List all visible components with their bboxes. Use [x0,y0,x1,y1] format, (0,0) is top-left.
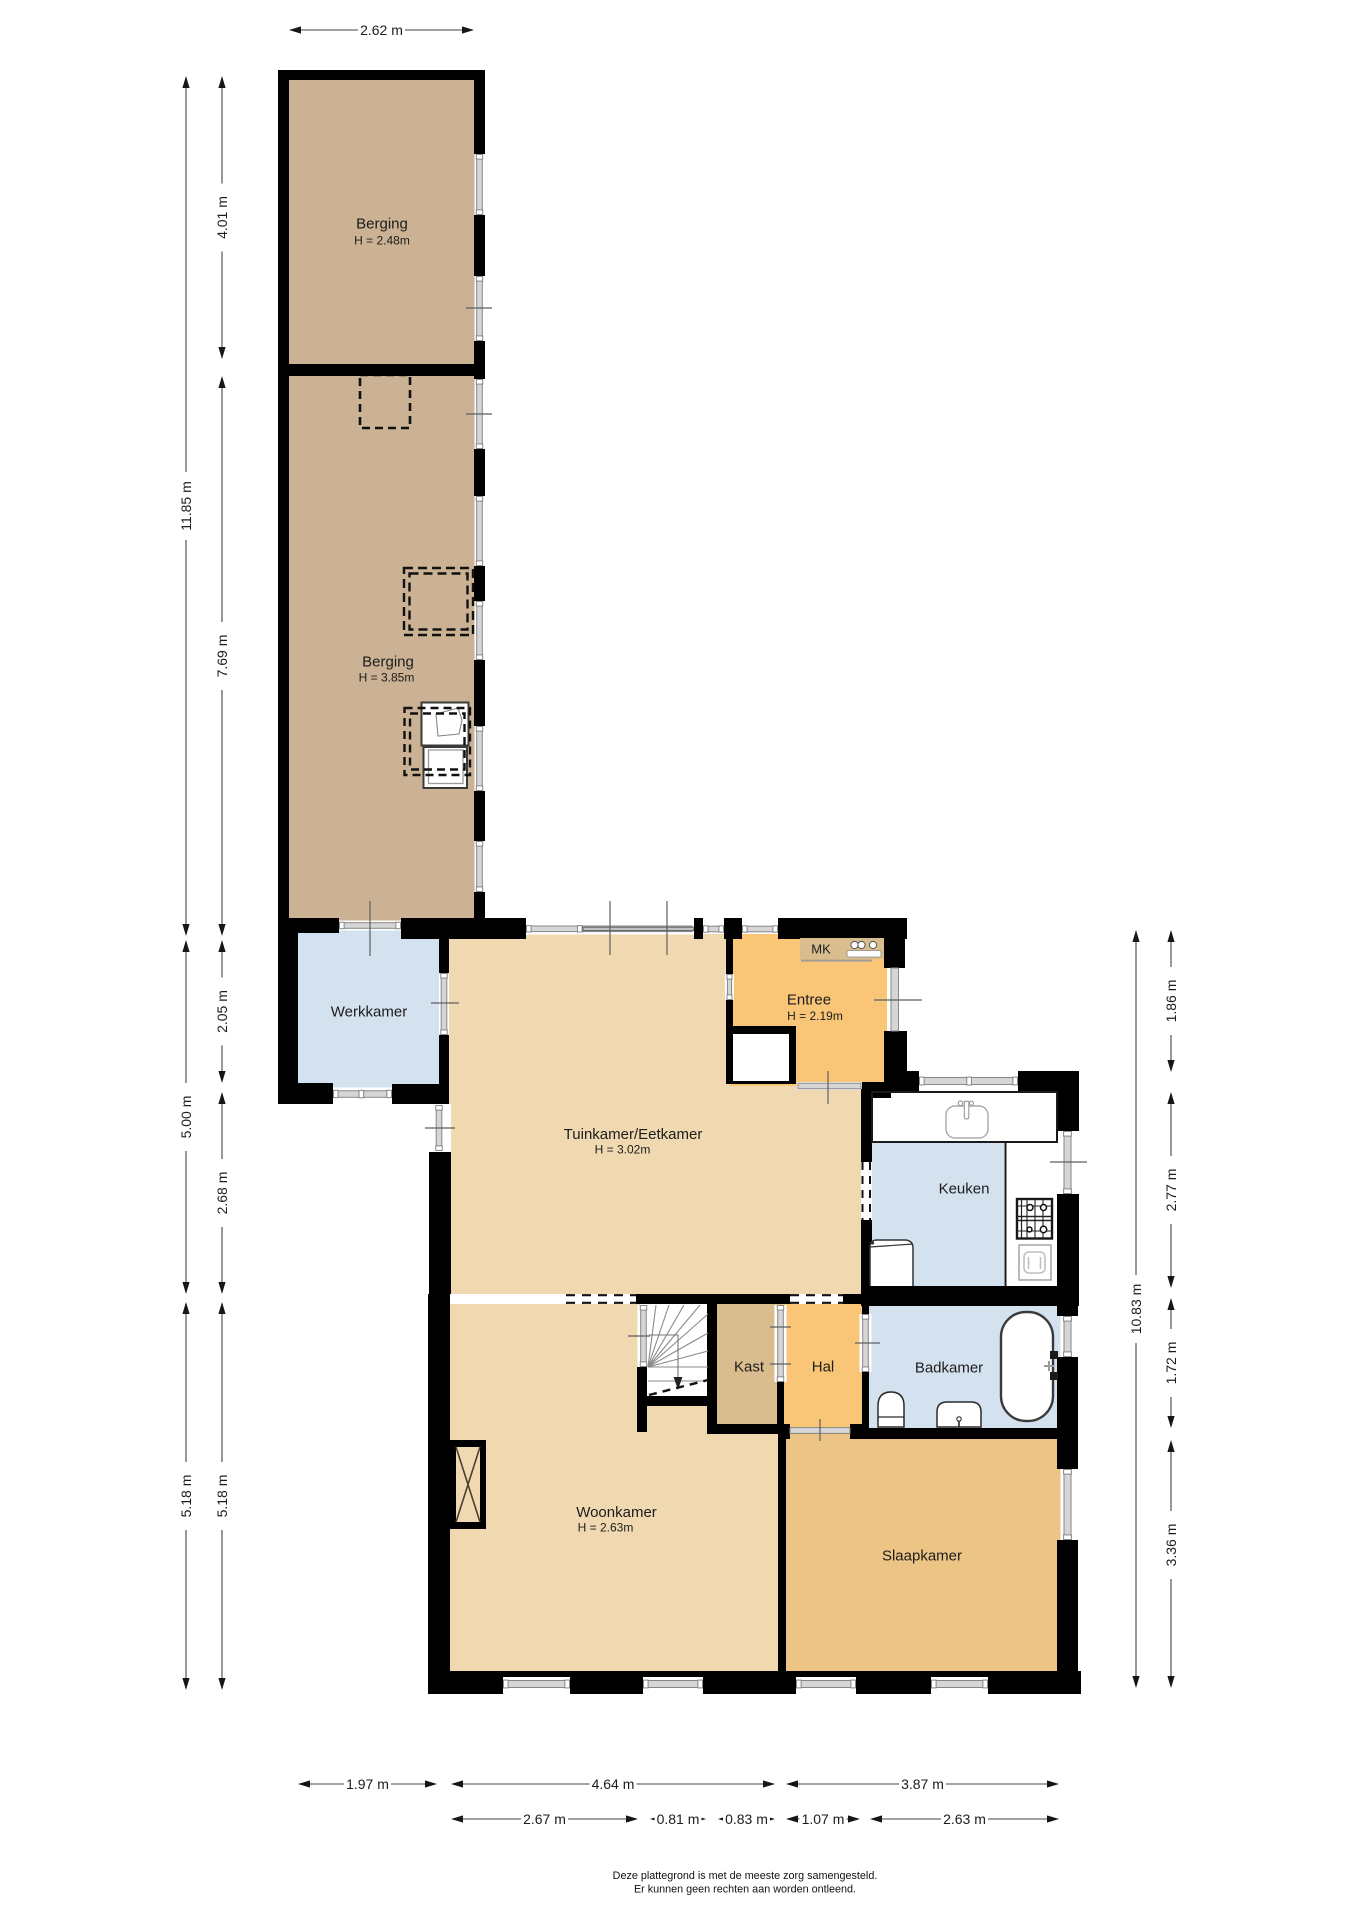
svg-text:Hal: Hal [812,1359,835,1376]
svg-text:1.07 m: 1.07 m [802,1811,845,1827]
svg-text:H = 2.19m: H = 2.19m [787,1009,843,1023]
svg-text:2.63 m: 2.63 m [943,1811,986,1827]
svg-text:4.64 m: 4.64 m [592,1776,635,1792]
svg-text:2.67 m: 2.67 m [523,1811,566,1827]
svg-text:5.18 m: 5.18 m [178,1475,194,1518]
svg-text:Kast: Kast [734,1359,765,1376]
svg-text:1.72 m: 1.72 m [1163,1342,1179,1385]
svg-text:Tuinkamer/Eetkamer: Tuinkamer/Eetkamer [564,1126,703,1143]
svg-text:H = 2.63m: H = 2.63m [578,1521,634,1535]
svg-text:Slaapkamer: Slaapkamer [882,1548,962,1565]
svg-text:Werkkamer: Werkkamer [331,1004,407,1021]
svg-text:Keuken: Keuken [939,1181,990,1198]
svg-text:H = 2.48m: H = 2.48m [354,234,410,248]
svg-text:Er kunnen geen rechten aan wor: Er kunnen geen rechten aan worden ontlee… [634,1884,856,1896]
svg-text:2.62 m: 2.62 m [360,22,403,38]
svg-text:0.83 m: 0.83 m [725,1811,768,1827]
svg-text:Entree: Entree [787,992,831,1009]
svg-text:11.85 m: 11.85 m [178,481,194,531]
svg-text:MK: MK [811,942,831,957]
svg-text:5.00 m: 5.00 m [178,1096,194,1139]
svg-text:Berging: Berging [356,216,408,233]
svg-text:2.05 m: 2.05 m [214,990,230,1033]
svg-text:5.18 m: 5.18 m [214,1475,230,1518]
svg-text:7.69 m: 7.69 m [214,635,230,678]
svg-text:Woonkamer: Woonkamer [576,1504,657,1521]
svg-text:0.81 m: 0.81 m [657,1811,700,1827]
svg-text:10.83 m: 10.83 m [1128,1284,1144,1335]
svg-text:Berging: Berging [362,654,414,671]
svg-text:Badkamer: Badkamer [915,1360,983,1377]
svg-text:2.68 m: 2.68 m [214,1172,230,1215]
svg-text:Deze plattegrond is met de mee: Deze plattegrond is met de meeste zorg s… [613,1870,878,1882]
svg-text:3.36 m: 3.36 m [1163,1524,1179,1567]
svg-text:2.77 m: 2.77 m [1163,1169,1179,1212]
svg-text:3.87 m: 3.87 m [901,1776,944,1792]
svg-text:1.86 m: 1.86 m [1163,980,1179,1023]
svg-text:H = 3.85m: H = 3.85m [359,671,415,685]
svg-text:H = 3.02m: H = 3.02m [595,1143,651,1157]
svg-text:1.97 m: 1.97 m [346,1776,389,1792]
svg-text:4.01 m: 4.01 m [214,196,230,239]
